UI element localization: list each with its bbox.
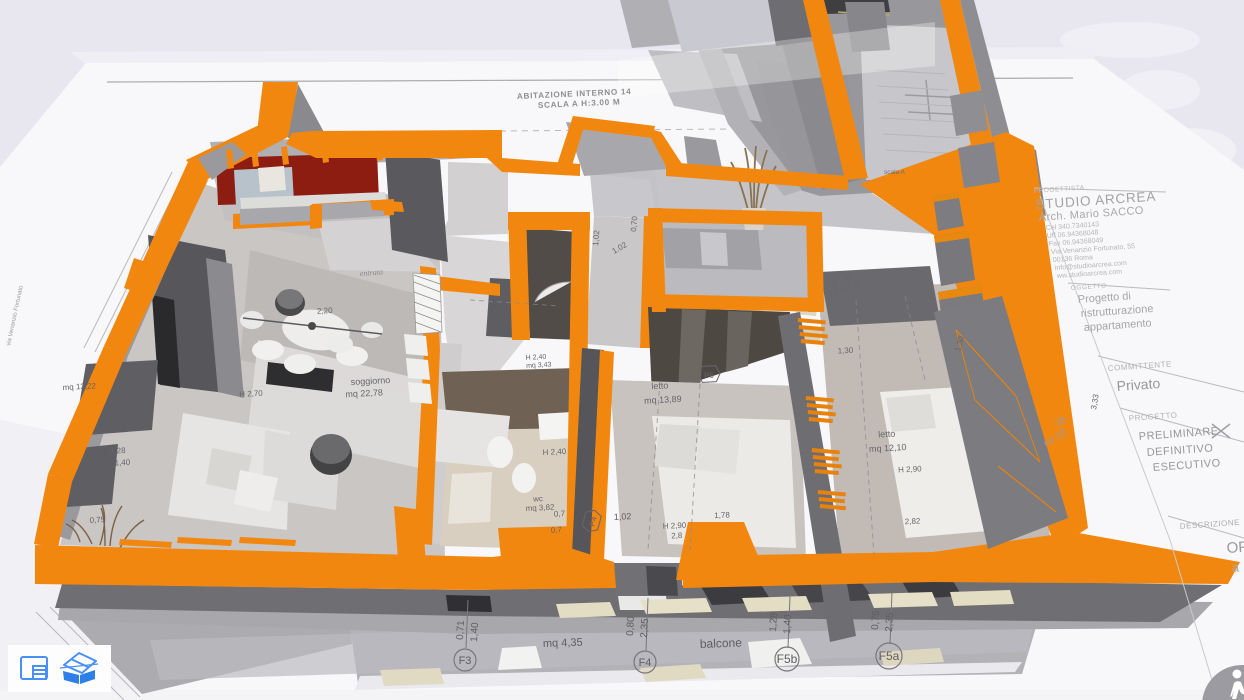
svg-text:OP: OP <box>1226 539 1244 557</box>
svg-text:1,40: 1,40 <box>782 614 794 634</box>
svg-text:1,28: 1,28 <box>768 612 780 632</box>
svg-text:1,02: 1,02 <box>591 229 601 246</box>
svg-text:balcone: balcone <box>700 636 743 651</box>
svg-text:F5a: F5a <box>879 649 900 663</box>
svg-text:F4: F4 <box>639 657 652 669</box>
svg-text:wc: wc <box>533 370 543 378</box>
svg-text:H 2,90: H 2,90 <box>662 521 687 531</box>
svg-text:0,75: 0,75 <box>870 610 882 630</box>
svg-text:2,82: 2,82 <box>905 516 922 526</box>
svg-text:0,70: 0,70 <box>629 215 639 232</box>
svg-text:mq 13,22: mq 13,22 <box>62 381 96 392</box>
svg-text:soggiorno: soggiorno <box>350 375 390 387</box>
svg-text:1,02: 1,02 <box>614 511 632 522</box>
svg-text:2,35: 2,35 <box>639 618 651 638</box>
svg-text:1,30: 1,30 <box>838 346 855 356</box>
svg-text:H 2,90: H 2,90 <box>898 464 923 474</box>
svg-text:0,71: 0,71 <box>455 620 467 640</box>
svg-text:1,78: 1,78 <box>714 510 731 520</box>
svg-text:letto: letto <box>878 429 896 440</box>
svg-text:H 2,40: H 2,40 <box>526 354 547 362</box>
svg-text:H 2,40: H 2,40 <box>542 447 567 457</box>
svg-text:0,7: 0,7 <box>551 525 563 535</box>
svg-text:mq 22,78: mq 22,78 <box>345 387 383 399</box>
svg-text:mq 3,82: mq 3,82 <box>525 503 555 514</box>
svg-text:F3: F3 <box>459 655 472 667</box>
svg-text:0,7: 0,7 <box>554 509 566 519</box>
svg-text:P6: P6 <box>704 371 715 381</box>
svg-text:0,75: 0,75 <box>89 515 106 525</box>
svg-text:1,40: 1,40 <box>114 458 131 468</box>
svg-text:H 2,70: H 2,70 <box>239 389 264 399</box>
svg-text:F5b: F5b <box>777 652 798 666</box>
svg-text:mq 13,89: mq 13,89 <box>644 394 682 406</box>
svg-text:2,20: 2,20 <box>317 306 334 316</box>
svg-text:entrata: entrata <box>360 267 384 278</box>
svg-text:mq 12,10: mq 12,10 <box>869 442 907 454</box>
svg-text:mq 4,35: mq 4,35 <box>543 637 583 650</box>
svg-text:mq 3,43: mq 3,43 <box>526 361 552 369</box>
svg-text:2,8: 2,8 <box>671 531 683 541</box>
svg-text:1,28: 1,28 <box>110 446 127 456</box>
svg-text:scala A: scala A <box>884 169 906 176</box>
svg-text:1,40: 1,40 <box>469 622 481 642</box>
svg-text:Privato: Privato <box>1116 375 1161 394</box>
svg-text:2,35: 2,35 <box>884 612 896 632</box>
svg-text:0,80: 0,80 <box>625 616 637 636</box>
